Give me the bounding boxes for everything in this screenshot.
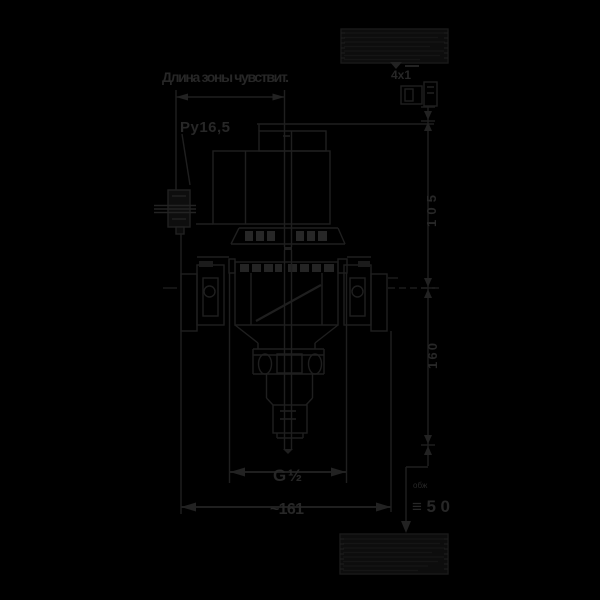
svg-text:Длина зоны чувствит.: Длина зоны чувствит.: [162, 69, 289, 85]
svg-text:Py16,5: Py16,5: [180, 119, 230, 136]
svg-text:обж: обж: [413, 481, 428, 490]
svg-text:~161: ~161: [270, 501, 304, 518]
svg-text:160: 160: [425, 343, 440, 369]
svg-text:G½: G½: [273, 466, 302, 485]
svg-text:105: 105: [424, 195, 439, 227]
svg-text:≡50: ≡50: [412, 497, 450, 516]
svg-text:4x1: 4x1: [391, 68, 411, 82]
